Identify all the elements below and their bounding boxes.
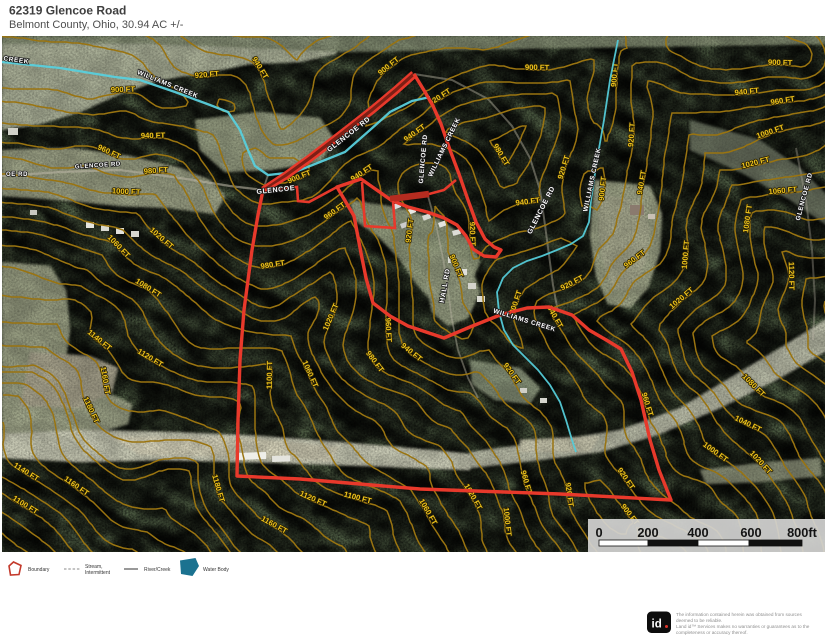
svg-text:id: id	[652, 619, 662, 631]
svg-text:960 FT: 960 FT	[383, 317, 393, 342]
svg-text:800ft: 800ft	[787, 525, 818, 540]
svg-text:900 FT: 900 FT	[525, 63, 550, 72]
svg-text:1120 FT: 1120 FT	[787, 262, 796, 291]
svg-text:980 FT: 980 FT	[143, 165, 168, 176]
svg-text:deemed to be reliable.: deemed to be reliable.	[676, 618, 722, 623]
svg-text:940 FT: 940 FT	[141, 131, 166, 140]
svg-text:920 FT: 920 FT	[626, 122, 637, 147]
svg-text:Land id™ Services makes no war: Land id™ Services makes no warranties or…	[676, 624, 810, 629]
svg-text:900 FT: 900 FT	[111, 85, 136, 95]
svg-text:62319 Glencoe Road: 62319 Glencoe Road	[9, 4, 126, 18]
svg-text:600: 600	[740, 525, 761, 540]
svg-text:completeness or accuracy there: completeness or accuracy thereof.	[676, 630, 748, 635]
svg-text:Intermittent: Intermittent	[85, 570, 111, 576]
svg-text:200: 200	[637, 525, 658, 540]
svg-text:Water Body: Water Body	[203, 567, 229, 573]
svg-text:Boundary: Boundary	[28, 567, 50, 573]
svg-text:1100 FT: 1100 FT	[265, 360, 274, 389]
svg-text:Belmont County, Ohio, 30.94 AC: Belmont County, Ohio, 30.94 AC +/-	[9, 19, 184, 31]
svg-text:The information contained here: The information contained herein was obt…	[676, 612, 803, 617]
svg-text:River/Creek: River/Creek	[144, 567, 171, 573]
svg-text:0: 0	[595, 525, 602, 540]
svg-text:900 FT: 900 FT	[768, 58, 793, 68]
svg-text:OE RD: OE RD	[6, 172, 28, 178]
svg-text:1000 FT: 1000 FT	[112, 186, 141, 197]
svg-text:400: 400	[687, 525, 708, 540]
